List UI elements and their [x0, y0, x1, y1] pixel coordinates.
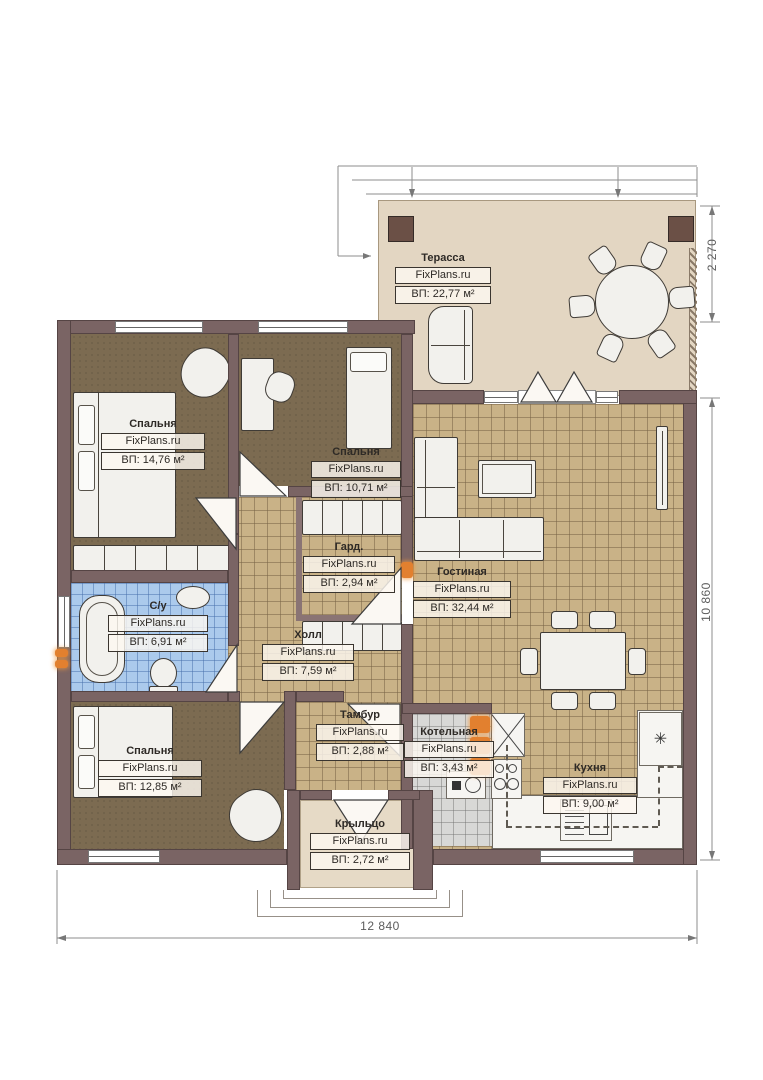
- brand-badge: FixPlans.ru: [310, 833, 410, 850]
- room-label-kitchen: Кухня FixPlans.ru ВП: 9,00 м²: [543, 762, 637, 814]
- wall-segment: [619, 390, 697, 404]
- terrace-post: [388, 216, 414, 242]
- wall-segment: [402, 703, 492, 714]
- dining-chair: [551, 611, 578, 629]
- toilet: [150, 658, 177, 688]
- room-label-bedroom1: Спальня FixPlans.ru ВП: 14,76 м²: [101, 418, 205, 470]
- area-badge: ВП: 3,43 м²: [404, 760, 494, 777]
- area-badge: ВП: 7,59 м²: [262, 663, 354, 680]
- dining-table: [540, 632, 626, 690]
- radiator: [401, 562, 413, 578]
- area-badge: ВП: 9,00 м²: [543, 796, 637, 813]
- wall-segment: [228, 334, 239, 534]
- room-label-living: Гостиная FixPlans.ru ВП: 32,44 м²: [413, 566, 511, 618]
- dining-chair: [589, 611, 616, 629]
- porch-step: [257, 890, 463, 917]
- dining-chair: [628, 648, 646, 675]
- brand-badge: FixPlans.ru: [108, 615, 208, 632]
- window: [596, 391, 618, 403]
- wall-segment: [57, 320, 71, 865]
- wall-segment: [57, 320, 415, 334]
- dimension-house-depth: 10 860: [699, 572, 713, 632]
- brand-badge: FixPlans.ru: [413, 581, 511, 598]
- area-badge: ВП: 6,91 м²: [108, 634, 208, 651]
- brand-badge: FixPlans.ru: [262, 644, 354, 661]
- area-badge: ВП: 2,94 м²: [303, 575, 395, 592]
- upper-cabinet-line: [658, 766, 683, 768]
- dining-chair: [589, 692, 616, 710]
- wall-segment: [401, 334, 413, 566]
- vent-shaft: [491, 713, 525, 757]
- single-bed: [346, 347, 392, 449]
- wall-segment: [413, 790, 433, 890]
- area-badge: ВП: 2,88 м²: [316, 743, 404, 760]
- area-badge: ВП: 14,76 м²: [101, 452, 205, 469]
- wall-segment: [228, 691, 240, 702]
- terrace-post: [668, 216, 694, 242]
- dimension-house-width: 12 840: [300, 919, 460, 933]
- upper-cabinet-line: [658, 766, 660, 826]
- brand-badge: FixPlans.ru: [98, 760, 202, 777]
- brand-badge: FixPlans.ru: [543, 777, 637, 794]
- area-badge: ВП: 12,85 м²: [98, 779, 202, 796]
- wall-segment: [284, 691, 296, 790]
- dining-chair: [551, 692, 578, 710]
- area-badge: ВП: 22,77 м²: [395, 286, 491, 303]
- radiator: [55, 660, 68, 668]
- room-label-porch: Крыльцо FixPlans.ru ВП: 2,72 м²: [310, 818, 410, 870]
- dimension-terrace-depth: 2 270: [705, 225, 719, 285]
- wall-segment: [402, 390, 484, 404]
- room-label-terrace: Терасса FixPlans.ru ВП: 22,77 м²: [395, 252, 491, 304]
- area-badge: ВП: 2,72 м²: [310, 852, 410, 869]
- terrace-door-threshold: [518, 390, 596, 404]
- upper-cabinet-line: [506, 745, 508, 826]
- wall-segment: [388, 790, 420, 800]
- wall-segment: [287, 790, 300, 890]
- window: [540, 850, 634, 863]
- terrace-railing: [689, 248, 697, 396]
- area-badge: ВП: 10,71 м²: [311, 480, 401, 497]
- wall-segment: [296, 691, 344, 702]
- room-label-hall: Холл FixPlans.ru ВП: 7,59 м²: [262, 629, 354, 681]
- window: [115, 321, 203, 333]
- room-label-bedroom3: Спальня FixPlans.ru ВП: 12,85 м²: [98, 745, 202, 797]
- wall-segment: [683, 390, 697, 865]
- tv-unit: [656, 426, 668, 510]
- coffee-table: [478, 460, 536, 498]
- room-label-boiler: Котельная FixPlans.ru ВП: 3,43 м²: [404, 726, 494, 778]
- radiator: [55, 649, 68, 657]
- window: [258, 321, 348, 333]
- fridge-symbol: ✳: [654, 729, 667, 749]
- wall-segment: [228, 534, 239, 646]
- window: [88, 850, 160, 863]
- brand-badge: FixPlans.ru: [404, 741, 494, 758]
- room-label-wardrobe: Гард. FixPlans.ru ВП: 2,94 м²: [303, 541, 395, 593]
- brand-badge: FixPlans.ru: [303, 556, 395, 573]
- room-label-bedroom2: Спальня FixPlans.ru ВП: 10,71 м²: [311, 446, 401, 498]
- wall-segment: [300, 790, 332, 800]
- floor-plan: ✳: [0, 0, 763, 1080]
- terrace-sofa: [428, 306, 473, 384]
- terrace-round-table: [595, 265, 669, 339]
- partition: [296, 497, 302, 621]
- area-badge: ВП: 32,44 м²: [413, 600, 511, 617]
- room-label-bathroom: С/у FixPlans.ru ВП: 6,91 м²: [108, 600, 208, 652]
- brand-badge: FixPlans.ru: [316, 724, 404, 741]
- window: [58, 596, 70, 648]
- brand-badge: FixPlans.ru: [101, 433, 205, 450]
- partition: [296, 615, 402, 621]
- brand-badge: FixPlans.ru: [311, 461, 401, 478]
- wardrobe-closet: [73, 545, 230, 571]
- wall-segment: [71, 570, 228, 583]
- dining-chair: [520, 648, 538, 675]
- window: [484, 391, 518, 403]
- shelving: [302, 500, 402, 535]
- brand-badge: FixPlans.ru: [395, 267, 491, 284]
- wall-segment: [71, 691, 228, 702]
- upper-cabinet-line: [506, 826, 658, 828]
- room-label-vestibule: Тамбур FixPlans.ru ВП: 2,88 м²: [316, 709, 404, 761]
- fridge: ✳: [639, 712, 682, 766]
- corner-sofa-horizontal: [414, 517, 544, 561]
